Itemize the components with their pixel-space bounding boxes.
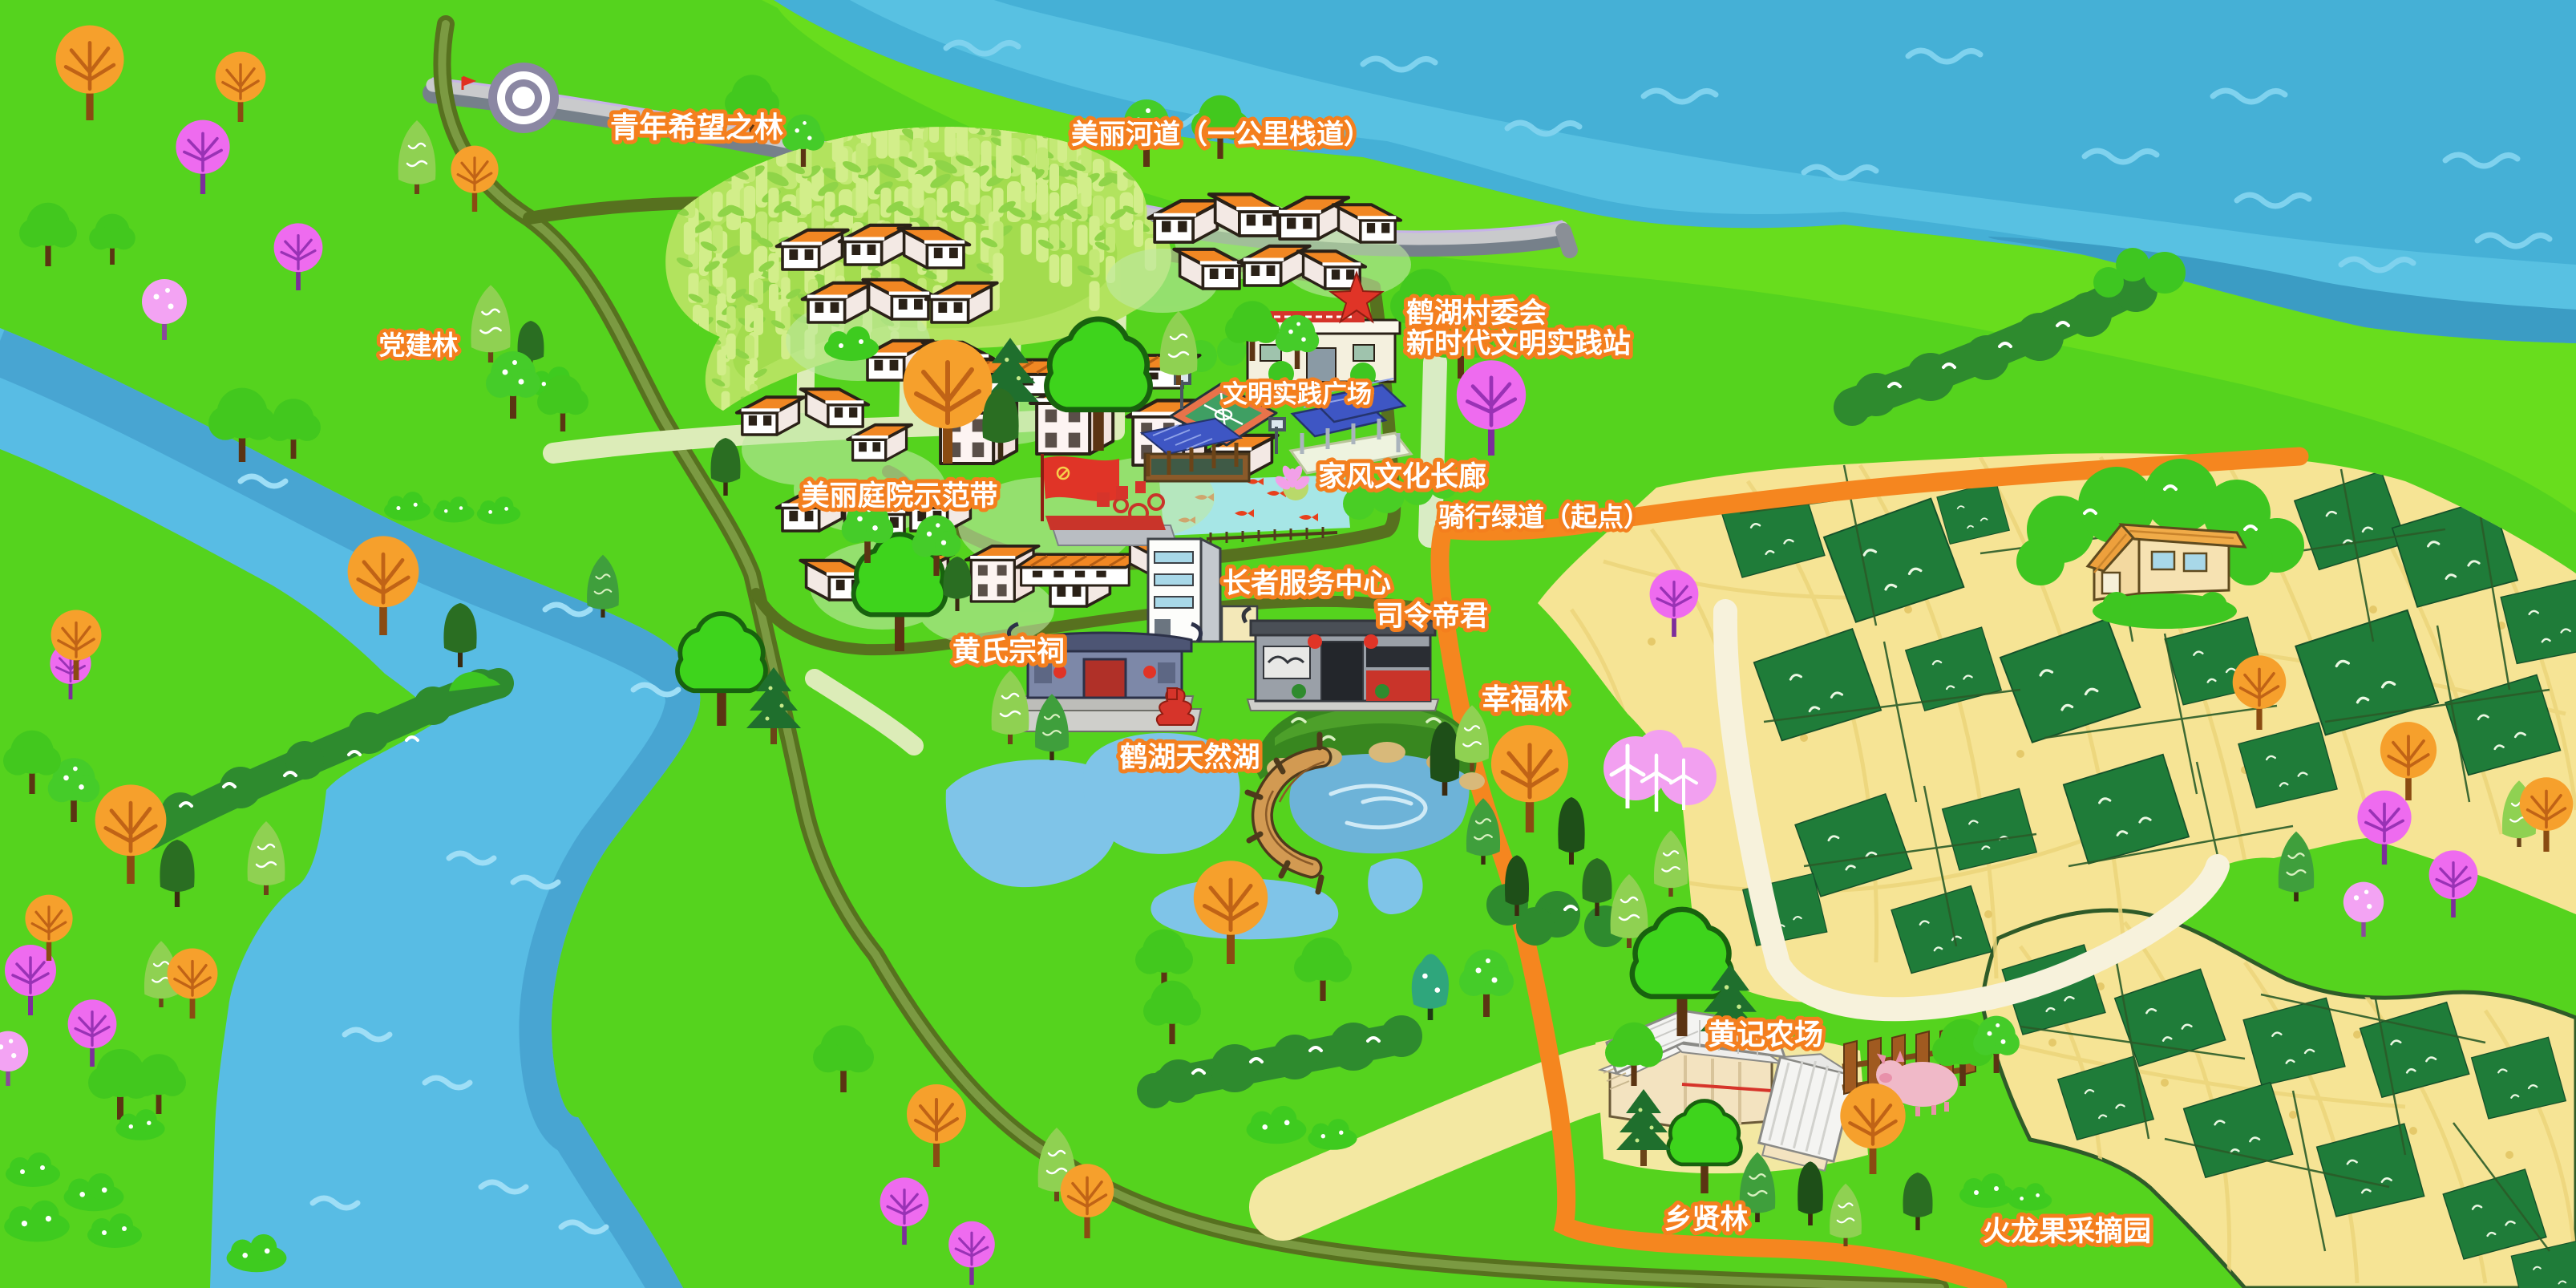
svg-text:鹤湖天然湖: 鹤湖天然湖 [1119,741,1260,773]
svg-text:美丽庭院示范带: 美丽庭院示范带 [801,480,997,512]
svg-text:幸福林: 幸福林 [1482,682,1568,715]
svg-text:长者服务中心: 长者服务中心 [1223,568,1391,599]
svg-text:火龙果采摘园: 火龙果采摘园 [1983,1216,2151,1247]
svg-text:党建林: 党建林 [379,330,459,360]
svg-text:司令帝君: 司令帝君 [1376,601,1488,632]
svg-text:黄记农场: 黄记农场 [1708,1018,1823,1051]
svg-text:新时代文明实践站: 新时代文明实践站 [1406,328,1631,359]
svg-text:鹤湖村委会: 鹤湖村委会 [1406,298,1547,329]
svg-text:家风文化长廊: 家风文化长廊 [1318,461,1486,492]
svg-text:乡贤林: 乡贤林 [1664,1204,1748,1235]
svg-text:文明实践广场: 文明实践广场 [1223,380,1372,408]
svg-text:骑行绿道（起点）: 骑行绿道（起点） [1438,502,1650,532]
svg-text:黄氏宗祠: 黄氏宗祠 [952,635,1065,667]
svg-text:美丽河道（一公里栈道）: 美丽河道（一公里栈道） [1071,119,1371,150]
svg-text:青年希望之林: 青年希望之林 [610,111,783,144]
